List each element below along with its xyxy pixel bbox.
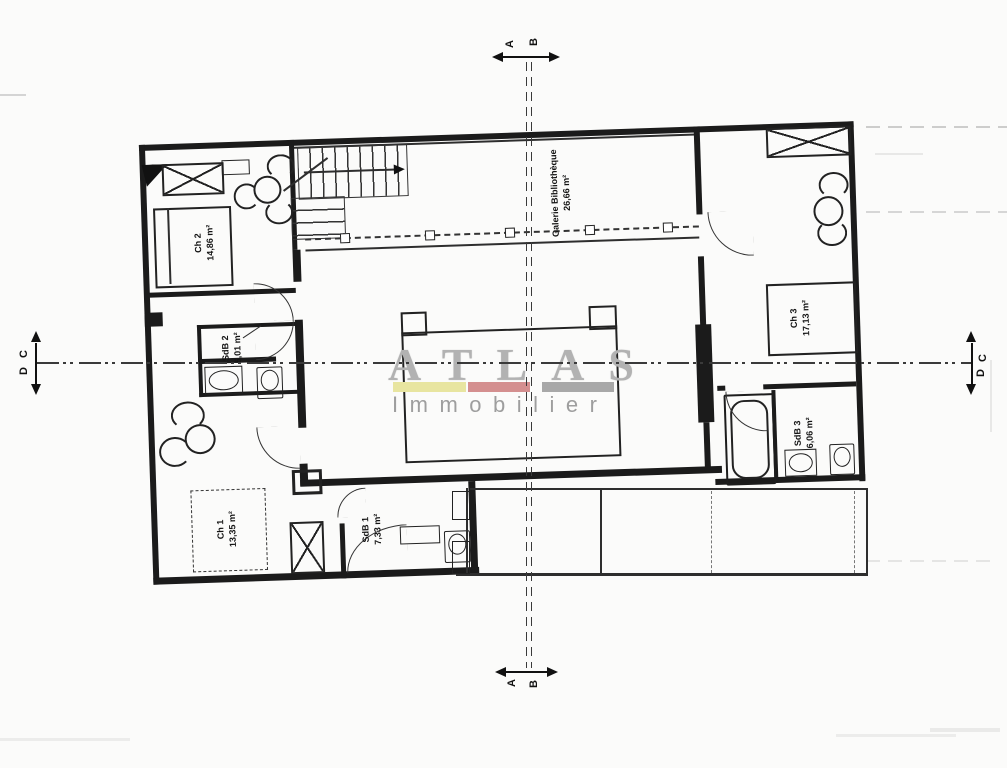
- strip-dashed-divider: [854, 491, 855, 573]
- sink-sdb2: [204, 366, 243, 395]
- room-name: Ch 1: [215, 520, 226, 540]
- wardrobe-ch1: [289, 521, 325, 574]
- room-area: 14,86 m²: [204, 224, 216, 260]
- room-name: Ch 3: [788, 308, 799, 328]
- room-label-sdb1: SdB 1 7,33 m²: [360, 514, 384, 546]
- sink-sdb3: [784, 449, 817, 477]
- room-label-galerie: Galerie Bibliothèque 26,66 m²: [548, 149, 573, 237]
- toilet-bowl: [833, 447, 851, 468]
- room-name: SdB 1: [360, 517, 372, 543]
- bed-ch3: [766, 281, 858, 356]
- wall-mid-vertical-b: [295, 320, 307, 428]
- room-name: SdB 2: [220, 335, 232, 361]
- room-name: Ch 2: [193, 233, 204, 253]
- room-label-sdb3: SdB 3 6,06 m²: [792, 417, 816, 449]
- room-label-ch1: Ch 1 13,35 m²: [215, 511, 239, 548]
- section-line-ab: [531, 62, 533, 668]
- wall-sdb1-left: [340, 523, 347, 578]
- strip-notch: [452, 541, 470, 574]
- marker-letter-d: D: [18, 367, 30, 375]
- door-arc-ch2-lower: [255, 320, 295, 360]
- stairs-arrow-icon: [394, 164, 405, 174]
- toilet-sdb3: [829, 443, 855, 475]
- wall-void-right-jog: [695, 324, 714, 422]
- wardrobe-ch2: [162, 162, 225, 196]
- room-label-ch2: Ch 2 14,86 m²: [192, 224, 216, 261]
- scan-artifact: [866, 126, 1007, 128]
- room-label-sdb2: SdB 2 5,01 m²: [220, 332, 244, 364]
- strip-dashed-divider: [711, 491, 712, 573]
- wall-void-right-a: [694, 126, 703, 214]
- wall-ch3-sdb3-b: [763, 381, 856, 389]
- chair: [233, 183, 260, 210]
- marker-letter-b: B: [528, 38, 540, 46]
- section-arrow-left-icon: [495, 667, 506, 677]
- wall-void-right-b: [698, 256, 706, 326]
- wall-mid-vertical-a: [292, 250, 301, 282]
- marker-letter-d: D: [975, 369, 987, 377]
- wall-void-right-c: [703, 422, 711, 472]
- scan-artifact: [0, 738, 130, 741]
- section-arrow-up-icon: [966, 331, 976, 342]
- marker-letter-c: C: [18, 350, 30, 358]
- section-line-dc: [37, 362, 971, 364]
- scan-artifact: [0, 94, 26, 96]
- void-tab-right: [588, 305, 617, 330]
- strip-notch: [452, 491, 470, 520]
- scanned-floor-plan-page: { "watermark": { "brand": "ATLAS", "subt…: [0, 0, 1007, 768]
- strip-right-line: [866, 488, 868, 576]
- balustrade-post: [505, 228, 515, 238]
- scan-artifact: [990, 360, 992, 432]
- room-area: 6,06 m²: [804, 417, 816, 448]
- sink-basin: [788, 453, 813, 473]
- section-arrow-left-icon: [492, 52, 503, 62]
- chair: [159, 436, 192, 467]
- scan-artifact: [875, 153, 923, 155]
- scan-artifact: [836, 734, 956, 737]
- room-area: 26,66 m²: [561, 175, 573, 211]
- shelf-ch2: [221, 159, 249, 175]
- balustrade-post: [340, 233, 350, 243]
- section-marker-top: [503, 56, 549, 58]
- wall-ch3-sdb3-a: [717, 386, 725, 391]
- section-arrow-up-icon: [31, 331, 41, 342]
- toilet-bowl: [260, 369, 279, 390]
- marker-letter-a: A: [504, 40, 516, 48]
- balustrade-post: [585, 225, 595, 235]
- wall-void-bottom: [300, 466, 722, 487]
- section-arrow-right-icon: [547, 667, 558, 677]
- chair: [265, 200, 294, 225]
- void-opening: [401, 325, 621, 463]
- marker-letter-c: C: [977, 354, 989, 362]
- section-arrow-down-icon: [31, 384, 41, 395]
- room-area: 5,01 m²: [232, 332, 244, 363]
- sink-basin: [208, 370, 239, 391]
- strip-divider: [600, 490, 602, 574]
- scan-artifact: [866, 211, 1007, 213]
- gallery-edge-line: [305, 236, 699, 251]
- room-name: SdB 3: [792, 420, 804, 446]
- room-area: 13,35 m²: [227, 511, 239, 547]
- marker-letter-b: B: [528, 680, 540, 688]
- room-area: 7,33 m²: [372, 514, 384, 545]
- section-arrow-down-icon: [966, 384, 976, 395]
- toilet-sdb2: [256, 366, 283, 399]
- scan-artifact: [866, 560, 996, 562]
- staircase-lower-flight: [291, 196, 346, 240]
- wardrobe-ch3: [766, 125, 852, 158]
- duct-ch1: [292, 469, 323, 495]
- room-area: 17,13 m²: [800, 300, 812, 336]
- floor-plan: Ch 2 14,86 m² Galerie Bibliothèque 26,66…: [139, 121, 868, 585]
- section-marker-left: [35, 343, 37, 384]
- wall-top: [139, 121, 854, 151]
- void-tab-left: [401, 312, 428, 337]
- marker-letter-a: A: [506, 679, 518, 687]
- section-marker-bottom: [506, 671, 548, 673]
- door-arc-ch3: [707, 211, 753, 257]
- room-label-ch3: Ch 3 17,13 m²: [788, 300, 812, 337]
- section-arrow-right-icon: [549, 52, 560, 62]
- door-arc-sdb1-small: [336, 488, 366, 518]
- section-line-ab: [526, 62, 528, 668]
- section-marker-right: [971, 343, 973, 384]
- room-name: Galerie Bibliothèque: [548, 149, 562, 237]
- door-arc-sitting: [256, 426, 300, 470]
- chair: [818, 171, 849, 198]
- chair: [817, 220, 848, 247]
- balustrade-post: [663, 222, 673, 232]
- wall-left-jog: [144, 312, 162, 327]
- balustrade-post: [425, 230, 435, 240]
- scan-artifact: [930, 728, 1000, 732]
- strip-bottom-line: [456, 573, 868, 576]
